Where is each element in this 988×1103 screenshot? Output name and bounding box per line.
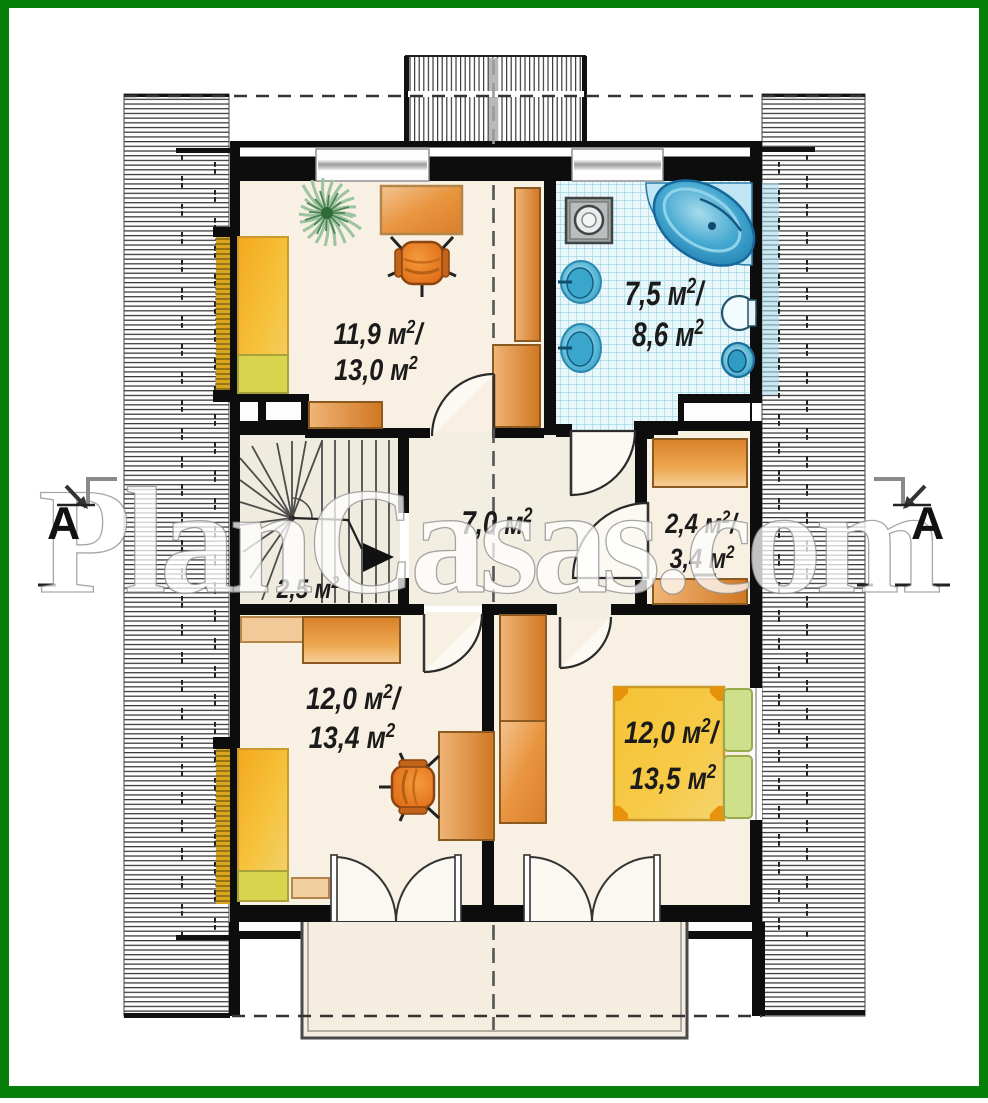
svg-text:8,6 м2: 8,6 м2: [632, 314, 704, 354]
svg-text:13,5 м2: 13,5 м2: [630, 761, 717, 796]
svg-text:A: A: [911, 497, 944, 549]
svg-text:PlanCasas.com: PlanCasas.com: [38, 457, 942, 625]
svg-text:13,4 м2: 13,4 м2: [309, 720, 396, 755]
svg-text:A: A: [47, 497, 80, 549]
svg-text:13,0 м2: 13,0 м2: [334, 353, 418, 387]
